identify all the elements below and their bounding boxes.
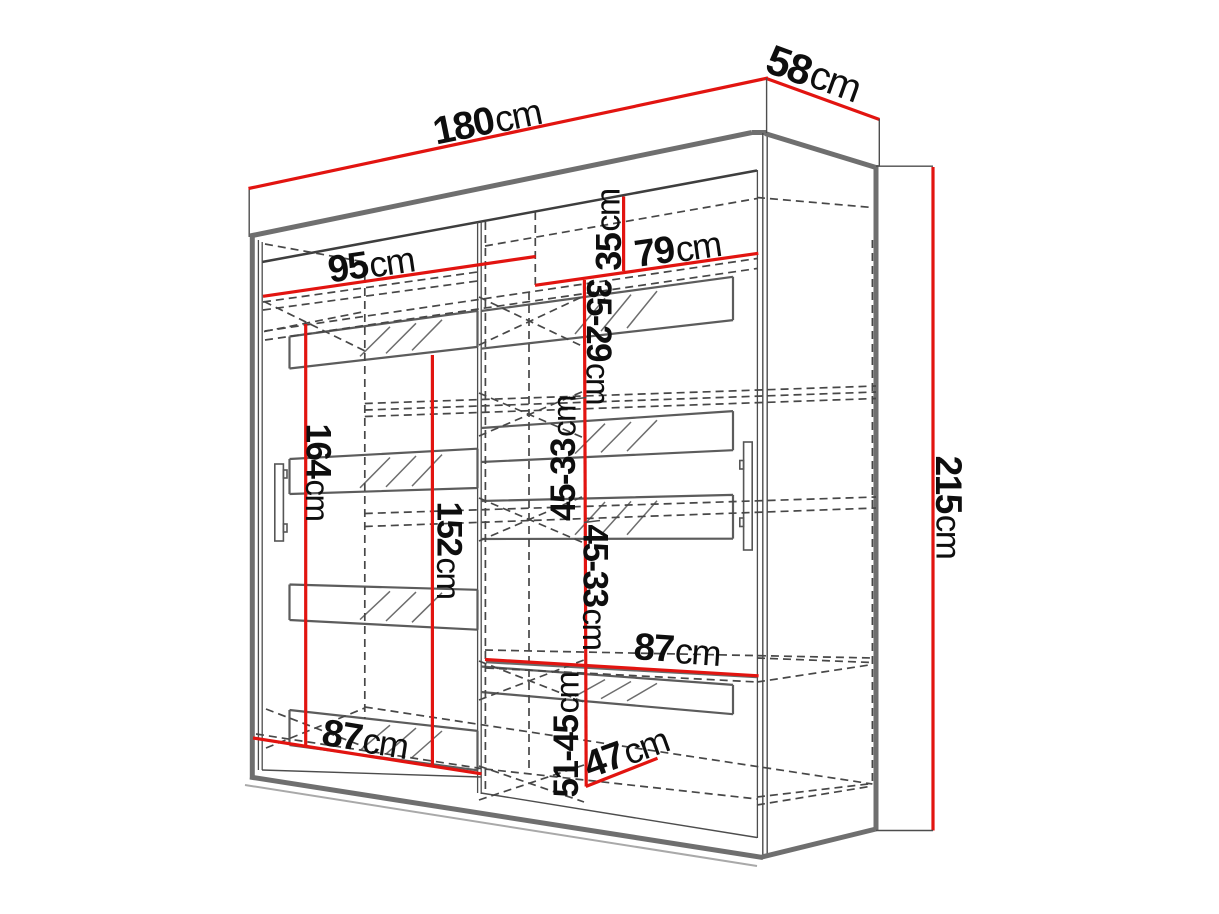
svg-text:87cm: 87cm [632, 626, 721, 674]
svg-text:152cm: 152cm [429, 502, 468, 599]
svg-text:51-45cm: 51-45cm [547, 672, 586, 797]
svg-text:45-33cm: 45-33cm [576, 524, 615, 649]
svg-text:35-29cm: 35-29cm [579, 279, 618, 404]
svg-text:215cm: 215cm [928, 456, 969, 559]
svg-text:164cm: 164cm [298, 424, 337, 521]
svg-text:35cm: 35cm [588, 189, 629, 271]
svg-text:45-33cm: 45-33cm [544, 396, 583, 521]
